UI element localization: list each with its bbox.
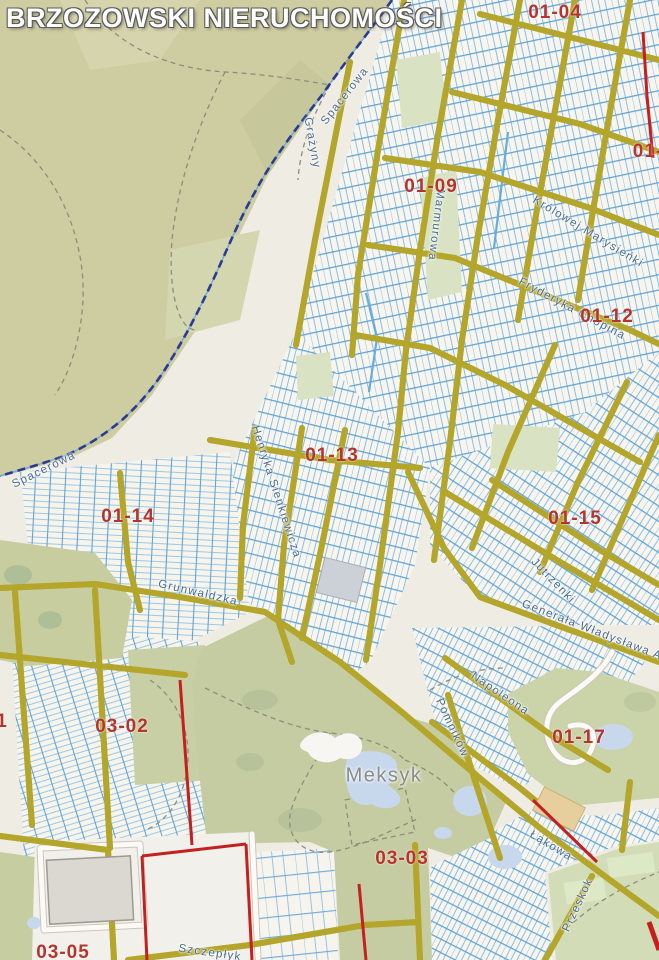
street-label: Grunwaldzka: [157, 578, 239, 608]
zone-label: 01-12: [580, 306, 634, 328]
street-label: Spacerowa: [319, 65, 371, 127]
zone-label: 1: [0, 711, 8, 733]
zone-label: 01-09: [404, 176, 458, 198]
street-label: Generała Władysława Andersa: [520, 598, 659, 678]
street-label: Jutrzenki: [529, 556, 578, 606]
street-label: Królowej Marysieńki: [530, 194, 645, 270]
street-label: Napoleona: [469, 670, 532, 718]
zone-label: 01-15: [548, 508, 602, 530]
zone-label: 01-04: [528, 2, 582, 24]
zone-label: 03-02: [95, 716, 149, 738]
street-label: Henryka Sienkiewicza: [249, 424, 303, 559]
street-label: Marmurowa: [426, 188, 447, 261]
zone-label: 01-17: [552, 727, 606, 749]
street-label: Grażyny: [302, 116, 323, 169]
street-label: Łąkowa: [528, 829, 575, 864]
zone-label: 01-14: [101, 506, 155, 528]
street-label: Fryderyka Chopina: [517, 276, 628, 343]
zone-label: 03-03: [375, 848, 429, 870]
map-labels-layer: SpacerowaSpacerowaGrażynyMarmurowaKrólow…: [0, 0, 659, 960]
street-label: Szczepłyk: [178, 943, 243, 960]
street-label: Przeskok: [560, 876, 595, 933]
map-canvas[interactable]: SpacerowaSpacerowaGrażynyMarmurowaKrólow…: [0, 0, 659, 960]
zone-label: 01-13: [305, 445, 359, 467]
place-label: Meksyk: [346, 765, 423, 788]
zone-label: 01-: [633, 141, 659, 163]
street-label: Pomników: [433, 697, 471, 760]
zone-label: 03-05: [36, 942, 90, 960]
watermark-text: BRZOZOWSKI NIERUCHOMOŚCI: [6, 3, 443, 34]
street-label: Spacerowa: [10, 449, 77, 490]
